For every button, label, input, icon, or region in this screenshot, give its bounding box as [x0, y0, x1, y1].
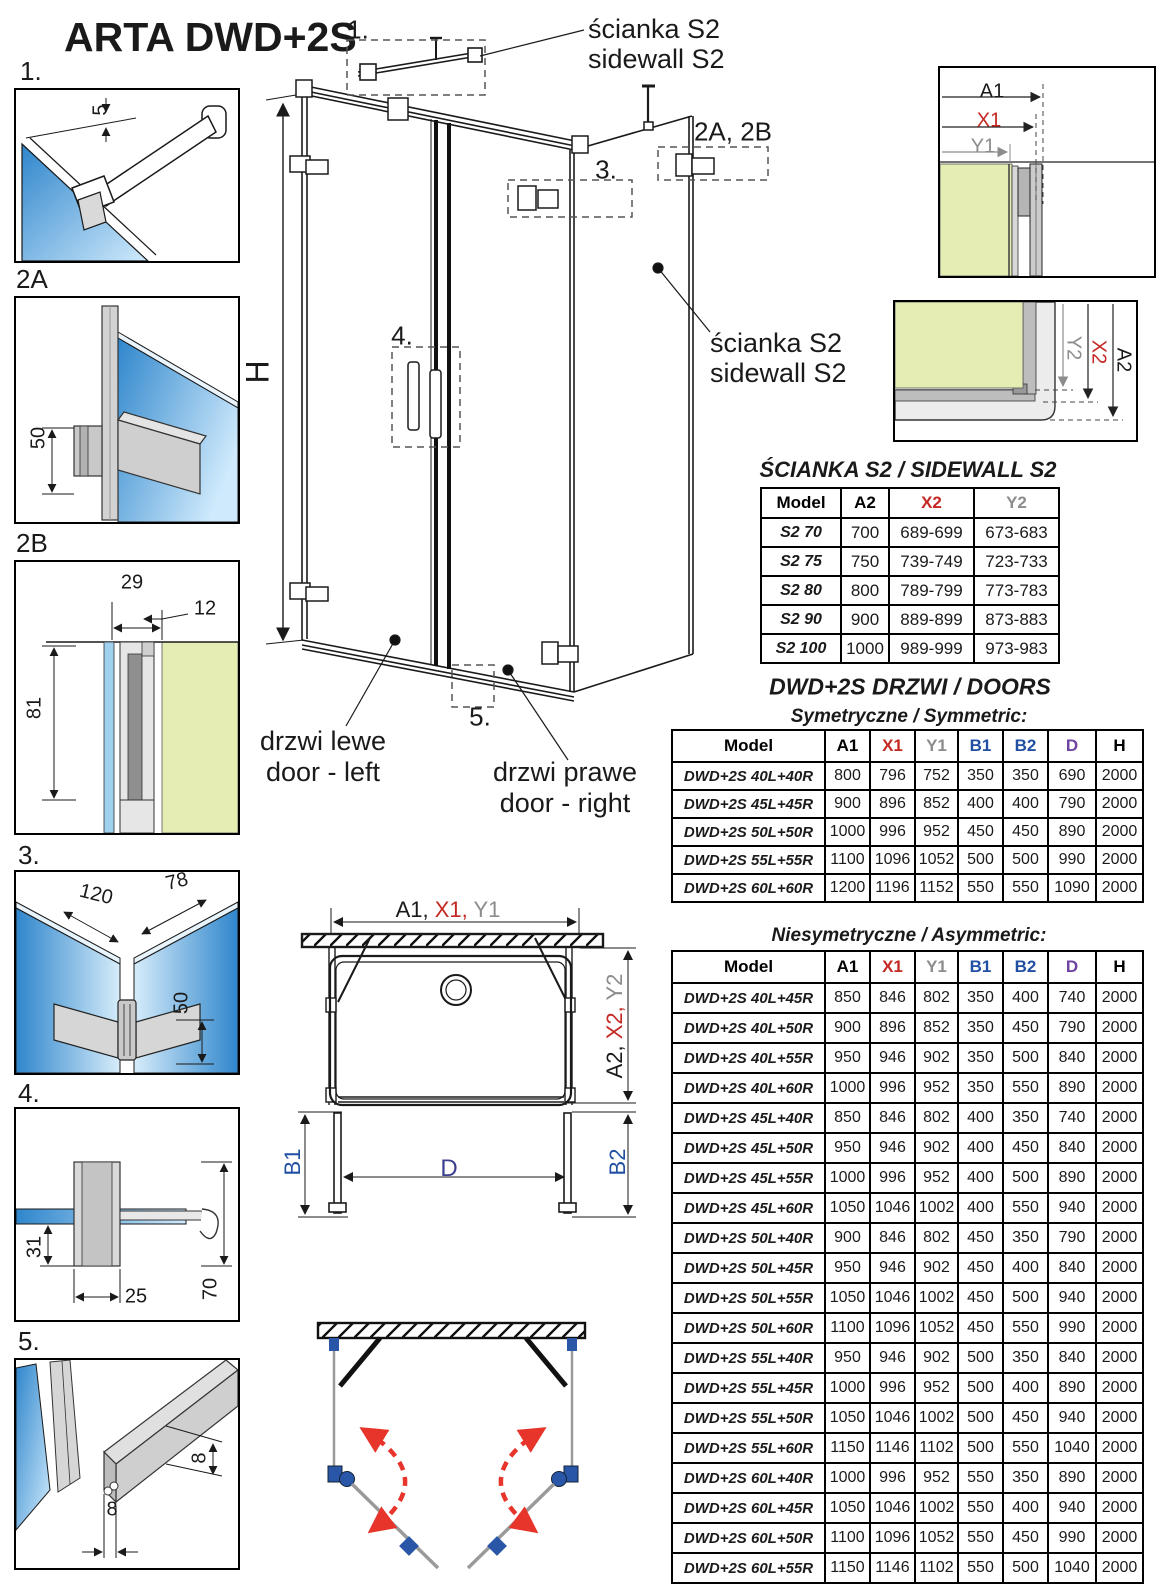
- column-header-b1: B1: [958, 730, 1003, 762]
- value-cell: 973-983: [974, 634, 1059, 663]
- table-row: DWD+2S 50L+60R1100109610524505509902000: [672, 1313, 1143, 1343]
- value-cell: 740: [1048, 983, 1096, 1013]
- model-cell: DWD+2S 60L+60R: [672, 874, 825, 902]
- glass-panel: [16, 1364, 50, 1530]
- value-cell: 1100: [825, 846, 870, 874]
- detail-1-dim-5: 5: [90, 104, 113, 115]
- value-cell: 740: [1048, 1103, 1096, 1133]
- model-cell: DWD+2S 50L+50R: [672, 818, 825, 846]
- table-row: DWD+2S 40L+45R8508468023504007402000: [672, 983, 1143, 1013]
- value-cell: 400: [958, 1133, 1003, 1163]
- value-cell: 700: [841, 518, 889, 547]
- model-cell: DWD+2S 55L+55R: [672, 846, 825, 874]
- support-bar: [72, 106, 226, 230]
- value-cell: 890: [1048, 1373, 1096, 1403]
- value-cell: 1090: [1048, 874, 1096, 902]
- sidewall-label-top-line1: ścianka S2: [588, 14, 720, 45]
- value-cell: 952: [915, 818, 958, 846]
- model-cell: DWD+2S 45L+45R: [672, 790, 825, 818]
- door-right-line2: door - right: [493, 788, 637, 819]
- value-cell: 873-883: [974, 605, 1059, 634]
- door-right-label: drzwi prawedoor - right: [493, 757, 637, 819]
- table-row: DWD+2S 60L+50R1100109610525504509902000: [672, 1523, 1143, 1553]
- sidewall-label-right-line2: sidewall S2: [710, 358, 847, 389]
- detail-2b-dim-12: 12: [194, 598, 216, 621]
- column-header-x1: X1: [870, 951, 915, 983]
- model-cell: DWD+2S 40L+45R: [672, 983, 825, 1013]
- value-cell: 2000: [1096, 1433, 1143, 1463]
- table-row: S2 1001000989-999973-983: [761, 634, 1059, 663]
- detail-box-2a: [14, 296, 240, 524]
- value-cell: 800: [825, 762, 870, 790]
- table-row: DWD+2S 55L+50R1050104610025004509402000: [672, 1403, 1143, 1433]
- model-cell: DWD+2S 55L+60R: [672, 1433, 825, 1463]
- value-cell: 450: [1003, 818, 1048, 846]
- left-door: [328, 1338, 438, 1568]
- value-cell: 350: [958, 983, 1003, 1013]
- model-cell: S2 100: [761, 634, 841, 663]
- table-row: S2 75750739-749723-733: [761, 547, 1059, 576]
- threshold-profile: [104, 1360, 238, 1502]
- value-cell: 840: [1048, 1343, 1096, 1373]
- value-cell: 1152: [915, 874, 958, 902]
- model-cell: DWD+2S 40L+40R: [672, 762, 825, 790]
- value-cell: 1002: [915, 1403, 958, 1433]
- table-row: DWD+2S 55L+60R11501146110250055010402000: [672, 1433, 1143, 1463]
- corner-top-x1-label: X1: [977, 110, 1001, 133]
- value-cell: 840: [1048, 1253, 1096, 1283]
- table-row: DWD+2S 45L+60R1050104610024005509402000: [672, 1193, 1143, 1223]
- column-header-b1: B1: [958, 951, 1003, 983]
- value-cell: 550: [958, 1463, 1003, 1493]
- swing-arrows: [364, 1430, 542, 1530]
- detail-5-dim-8-height: 8: [189, 1452, 212, 1463]
- value-cell: 500: [958, 846, 1003, 874]
- value-cell: 890: [1048, 1463, 1096, 1493]
- value-cell: 900: [825, 1223, 870, 1253]
- value-cell: 2000: [1096, 1193, 1143, 1223]
- value-cell: 950: [825, 1133, 870, 1163]
- value-cell: 790: [1048, 1223, 1096, 1253]
- value-cell: 952: [915, 1463, 958, 1493]
- wall-profile-section: [1009, 164, 1042, 276]
- value-cell: 850: [825, 1103, 870, 1133]
- detail-4-dim-25: 25: [125, 1286, 147, 1309]
- value-cell: 2000: [1096, 983, 1143, 1013]
- value-cell: 790: [1048, 790, 1096, 818]
- value-cell: 1102: [915, 1553, 958, 1583]
- value-cell: 1002: [915, 1493, 958, 1523]
- model-cell: S2 90: [761, 605, 841, 634]
- detail-4-dim-31: 31: [24, 1236, 47, 1258]
- value-cell: 450: [1003, 1523, 1048, 1553]
- value-cell: 500: [1003, 1163, 1048, 1193]
- table-row: DWD+2S 60L+55R11501146110255050010402000: [672, 1553, 1143, 1583]
- model-cell: S2 70: [761, 518, 841, 547]
- table-row: DWD+2S 55L+55R1100109610525005009902000: [672, 846, 1143, 874]
- value-cell: 2000: [1096, 1223, 1143, 1253]
- value-cell: 946: [870, 1253, 915, 1283]
- value-cell: 1052: [915, 1313, 958, 1343]
- plan-x1: X1,: [435, 897, 468, 922]
- table-row: DWD+2S 40L+55R9509469023505008402000: [672, 1043, 1143, 1073]
- doors-tables-title: DWD+2S DRZWI / DOORS: [769, 674, 1051, 701]
- value-cell: 400: [1003, 790, 1048, 818]
- column-header-y1: Y1: [915, 951, 958, 983]
- value-cell: 450: [958, 1283, 1003, 1313]
- value-cell: 940: [1048, 1193, 1096, 1223]
- value-cell: 500: [958, 1403, 1003, 1433]
- sidewall-label-top-line2: sidewall S2: [588, 44, 725, 75]
- spec-sheet-page: ARTA DWD+2S 1.: [0, 0, 1156, 1588]
- plan-y1: Y1: [473, 897, 500, 922]
- detail-3-label: 3.: [18, 840, 40, 871]
- callout-2ab: 2A, 2B: [694, 117, 772, 148]
- detail-1-drawing: [16, 90, 238, 261]
- value-cell: 400: [1003, 1373, 1048, 1403]
- value-cell: 1050: [825, 1193, 870, 1223]
- value-cell: 550: [958, 874, 1003, 902]
- value-cell: 500: [1003, 846, 1048, 874]
- asymmetric-table-title: Niesymetryczne / Asymmetric:: [772, 925, 1047, 947]
- value-cell: 2000: [1096, 1313, 1143, 1343]
- value-cell: 450: [958, 1253, 1003, 1283]
- wall-section: [162, 642, 238, 833]
- plan-b1-label: B1: [280, 1149, 306, 1176]
- right-door: [468, 1338, 578, 1568]
- value-cell: 739-749: [889, 547, 974, 576]
- table-header-row: ModelA1X1Y1B1B2DH: [672, 730, 1143, 762]
- detail-1-label: 1.: [20, 56, 42, 87]
- detail-5-label: 5.: [18, 1326, 40, 1357]
- value-cell: 802: [915, 1103, 958, 1133]
- column-header-h: H: [1096, 951, 1143, 983]
- plan-a2: A2,: [602, 1045, 627, 1078]
- value-cell: 2000: [1096, 1163, 1143, 1193]
- value-cell: 946: [870, 1043, 915, 1073]
- value-cell: 400: [1003, 1253, 1048, 1283]
- table-row: DWD+2S 50L+40R9008468024503507902000: [672, 1223, 1143, 1253]
- side-profiles: [326, 938, 575, 1105]
- value-cell: 1046: [870, 1283, 915, 1313]
- value-cell: 1102: [915, 1433, 958, 1463]
- corner-detail-bottom-box: [893, 300, 1138, 442]
- value-cell: 500: [1003, 1553, 1048, 1583]
- table-row: S2 80800789-799773-783: [761, 576, 1059, 605]
- value-cell: 450: [958, 1313, 1003, 1343]
- value-cell: 900: [841, 605, 889, 634]
- value-cell: 2000: [1096, 1523, 1143, 1553]
- value-cell: 902: [915, 1253, 958, 1283]
- value-cell: 350: [1003, 1343, 1048, 1373]
- door-left-label: drzwi lewedoor - left: [260, 726, 386, 788]
- column-header-model: Model: [761, 488, 841, 518]
- value-cell: 896: [870, 790, 915, 818]
- value-cell: 950: [825, 1043, 870, 1073]
- detail-4-label: 4.: [18, 1078, 40, 1109]
- value-cell: 1040: [1048, 1553, 1096, 1583]
- value-cell: 990: [1048, 846, 1096, 874]
- glass-section: [940, 164, 1012, 276]
- model-cell: DWD+2S 55L+45R: [672, 1373, 825, 1403]
- detail-box-1: [14, 88, 240, 263]
- value-cell: 400: [958, 1163, 1003, 1193]
- value-cell: 890: [1048, 1073, 1096, 1103]
- model-cell: S2 80: [761, 576, 841, 605]
- model-cell: DWD+2S 55L+40R: [672, 1343, 825, 1373]
- value-cell: 1050: [825, 1493, 870, 1523]
- asymmetric-doors-table: ModelA1X1Y1B1B2DHDWD+2S 40L+45R850846802…: [671, 950, 1144, 1584]
- table-row: DWD+2S 45L+55R10009969524005008902000: [672, 1163, 1143, 1193]
- detail-2b-label: 2B: [16, 528, 48, 559]
- value-cell: 1000: [825, 1163, 870, 1193]
- value-cell: 1150: [825, 1433, 870, 1463]
- value-cell: 940: [1048, 1283, 1096, 1313]
- value-cell: 889-899: [889, 605, 974, 634]
- model-cell: DWD+2S 50L+40R: [672, 1223, 825, 1253]
- model-cell: DWD+2S 60L+55R: [672, 1553, 825, 1583]
- value-cell: 900: [825, 1013, 870, 1043]
- value-cell: 2000: [1096, 1103, 1143, 1133]
- value-cell: 950: [825, 1343, 870, 1373]
- value-cell: 500: [1003, 1043, 1048, 1073]
- value-cell: 846: [870, 1223, 915, 1253]
- value-cell: 550: [1003, 1313, 1048, 1343]
- model-cell: DWD+2S 50L+60R: [672, 1313, 825, 1343]
- value-cell: 2000: [1096, 874, 1143, 902]
- sidewall-label-right-line1: ścianka S2: [710, 328, 842, 359]
- value-cell: 550: [1003, 874, 1048, 902]
- detail-3-dim-50: 50: [171, 992, 194, 1014]
- value-cell: 1046: [870, 1493, 915, 1523]
- corner-detail-top-box: [938, 66, 1156, 278]
- value-cell: 400: [958, 1103, 1003, 1133]
- value-cell: 500: [958, 1433, 1003, 1463]
- door-left-line1: drzwi lewe: [260, 726, 386, 757]
- value-cell: 1046: [870, 1193, 915, 1223]
- corner-top-y1-label: Y1: [971, 136, 995, 159]
- column-header-a2: A2: [841, 488, 889, 518]
- value-cell: 2000: [1096, 1133, 1143, 1163]
- value-cell: 1000: [825, 818, 870, 846]
- value-cell: 550: [1003, 1193, 1048, 1223]
- table-row: S2 90900889-899873-883: [761, 605, 1059, 634]
- value-cell: 1046: [870, 1403, 915, 1433]
- handle-block: [74, 1162, 120, 1266]
- detail-5-drawing: [16, 1360, 238, 1568]
- detail-3-drawing: [16, 872, 238, 1073]
- value-cell: 902: [915, 1133, 958, 1163]
- plan-a1: A1,: [396, 897, 429, 922]
- model-cell: DWD+2S 45L+40R: [672, 1103, 825, 1133]
- plan-b2-label: B2: [605, 1149, 631, 1176]
- value-cell: 1052: [915, 1523, 958, 1553]
- column-header-a1: A1: [825, 951, 870, 983]
- value-cell: 2000: [1096, 1553, 1143, 1583]
- table-row: DWD+2S 45L+50R9509469024004508402000: [672, 1133, 1143, 1163]
- value-cell: 802: [915, 983, 958, 1013]
- value-cell: 996: [870, 1373, 915, 1403]
- value-cell: 2000: [1096, 1343, 1143, 1373]
- value-cell: 350: [958, 1013, 1003, 1043]
- value-cell: 1052: [915, 846, 958, 874]
- leader-lines: [346, 30, 710, 760]
- glass-edge: [104, 642, 114, 833]
- model-cell: DWD+2S 45L+55R: [672, 1163, 825, 1193]
- value-cell: 350: [1003, 1463, 1048, 1493]
- value-cell: 940: [1048, 1403, 1096, 1433]
- column-header-model: Model: [672, 951, 825, 983]
- door-left-line2: door - left: [260, 757, 386, 788]
- value-cell: 550: [958, 1523, 1003, 1553]
- door-swing-diagram: [290, 1290, 650, 1588]
- value-cell: 896: [870, 1013, 915, 1043]
- value-cell: 940: [1048, 1493, 1096, 1523]
- table-row: DWD+2S 45L+40R8508468024003507402000: [672, 1103, 1143, 1133]
- table-header-row: ModelA2X2Y2: [761, 488, 1059, 518]
- profile-section: [120, 642, 154, 833]
- value-cell: 1000: [825, 1463, 870, 1493]
- value-cell: 996: [870, 818, 915, 846]
- value-cell: 550: [1003, 1433, 1048, 1463]
- value-cell: 450: [958, 818, 1003, 846]
- value-cell: 850: [825, 983, 870, 1013]
- table-row: DWD+2S 60L+40R10009969525503508902000: [672, 1463, 1143, 1493]
- detail-2a-drawing: [16, 298, 238, 522]
- callout-4: 4.: [391, 321, 413, 352]
- detail-box-5: [14, 1358, 240, 1570]
- column-header-model: Model: [672, 730, 825, 762]
- column-header-d: D: [1048, 951, 1096, 983]
- wall-profile: [102, 306, 118, 520]
- value-cell: 846: [870, 1103, 915, 1133]
- value-cell: 350: [958, 762, 1003, 790]
- value-cell: 450: [1003, 1013, 1048, 1043]
- value-cell: 500: [1003, 1283, 1048, 1313]
- corner-detail-bottom-drawing: [895, 302, 1136, 440]
- value-cell: 350: [1003, 1103, 1048, 1133]
- value-cell: 2000: [1096, 1073, 1143, 1103]
- value-cell: 1000: [825, 1373, 870, 1403]
- model-cell: DWD+2S 55L+50R: [672, 1403, 825, 1433]
- model-cell: DWD+2S 60L+45R: [672, 1493, 825, 1523]
- value-cell: 1050: [825, 1283, 870, 1313]
- table-row: DWD+2S 50L+55R1050104610024505009402000: [672, 1283, 1143, 1313]
- callout-3: 3.: [595, 155, 617, 186]
- corner-bottom-y2-label: Y2: [1062, 336, 1085, 360]
- callout-5: 5.: [469, 702, 491, 733]
- plan-d-label: D: [440, 1155, 457, 1183]
- value-cell: 1000: [841, 634, 889, 663]
- value-cell: 790: [1048, 1013, 1096, 1043]
- column-header-b2: B2: [1003, 730, 1048, 762]
- value-cell: 773-783: [974, 576, 1059, 605]
- shower-tray: [330, 956, 571, 1105]
- column-header-d: D: [1048, 730, 1096, 762]
- model-cell: DWD+2S 50L+45R: [672, 1253, 825, 1283]
- value-cell: 723-733: [974, 547, 1059, 576]
- symmetric-doors-table: ModelA1X1Y1B1B2DHDWD+2S 40L+40R800796752…: [671, 729, 1144, 903]
- column-header-a1: A1: [825, 730, 870, 762]
- value-cell: 900: [825, 790, 870, 818]
- value-cell: 400: [1003, 983, 1048, 1013]
- table-row: DWD+2S 40L+50R9008968523504507902000: [672, 1013, 1143, 1043]
- plan-top-dim-label: A1, X1, Y1: [396, 897, 501, 923]
- model-cell: DWD+2S 60L+50R: [672, 1523, 825, 1553]
- detail-2b-dim-81: 81: [24, 697, 47, 719]
- column-header-x2: X2: [889, 488, 974, 518]
- value-cell: 2000: [1096, 1283, 1143, 1313]
- door-right-line1: drzwi prawe: [493, 757, 637, 788]
- value-cell: 450: [1003, 1403, 1048, 1433]
- table-row: DWD+2S 55L+40R9509469025003508402000: [672, 1343, 1143, 1373]
- value-cell: 802: [915, 1223, 958, 1253]
- symmetric-table-title: Symetryczne / Symmetric:: [791, 706, 1028, 728]
- value-cell: 1096: [870, 1523, 915, 1553]
- corner-bottom-x2-label: X2: [1087, 340, 1110, 364]
- value-cell: 1146: [870, 1553, 915, 1583]
- value-cell: 1040: [1048, 1433, 1096, 1463]
- value-cell: 2000: [1096, 790, 1143, 818]
- wall-section-hatched: [318, 1323, 585, 1338]
- model-cell: DWD+2S 50L+55R: [672, 1283, 825, 1313]
- value-cell: 990: [1048, 1523, 1096, 1553]
- value-cell: 989-999: [889, 634, 974, 663]
- value-cell: 550: [1003, 1073, 1048, 1103]
- value-cell: 2000: [1096, 818, 1143, 846]
- table-row: S2 70700689-699673-683: [761, 518, 1059, 547]
- value-cell: 852: [915, 1013, 958, 1043]
- dim-5-lines: [26, 98, 136, 142]
- column-header-y2: Y2: [974, 488, 1059, 518]
- table-row: DWD+2S 60L+45R1050104610025504009402000: [672, 1493, 1143, 1523]
- height-dim-label: H: [240, 360, 277, 383]
- value-cell: 2000: [1096, 1043, 1143, 1073]
- value-cell: 840: [1048, 1133, 1096, 1163]
- model-cell: DWD+2S 60L+40R: [672, 1463, 825, 1493]
- value-cell: 2000: [1096, 1253, 1143, 1283]
- value-cell: 789-799: [889, 576, 974, 605]
- value-cell: 952: [915, 1163, 958, 1193]
- corner-detail-top-drawing: [940, 68, 1154, 276]
- value-cell: 946: [870, 1343, 915, 1373]
- value-cell: 2000: [1096, 1493, 1143, 1523]
- detail-2a-label: 2A: [16, 264, 48, 295]
- sidewall-table-title: ŚCIANKA S2 / SIDEWALL S2: [759, 457, 1056, 483]
- model-cell: DWD+2S 40L+50R: [672, 1013, 825, 1043]
- value-cell: 1096: [870, 1313, 915, 1343]
- value-cell: 952: [915, 1373, 958, 1403]
- value-cell: 1100: [825, 1523, 870, 1553]
- hinges-and-brackets: [290, 80, 714, 664]
- value-cell: 350: [958, 1073, 1003, 1103]
- callout-1: 1.: [347, 15, 369, 46]
- corner-top-a1-label: A1: [980, 81, 1004, 104]
- value-cell: 1096: [870, 846, 915, 874]
- value-cell: 673-683: [974, 518, 1059, 547]
- column-header-x1: X1: [870, 730, 915, 762]
- value-cell: 890: [1048, 1163, 1096, 1193]
- model-cell: DWD+2S 40L+60R: [672, 1073, 825, 1103]
- detail-2b-dim-29: 29: [121, 572, 143, 595]
- value-cell: 689-699: [889, 518, 974, 547]
- door-handles: [408, 362, 441, 438]
- plan-right-dim-label: A2, X2, Y2: [602, 974, 628, 1079]
- value-cell: 550: [958, 1553, 1003, 1583]
- value-cell: 1002: [915, 1283, 958, 1313]
- value-cell: 800: [841, 576, 889, 605]
- table-row: DWD+2S 60L+60R12001196115255055010902000: [672, 874, 1143, 902]
